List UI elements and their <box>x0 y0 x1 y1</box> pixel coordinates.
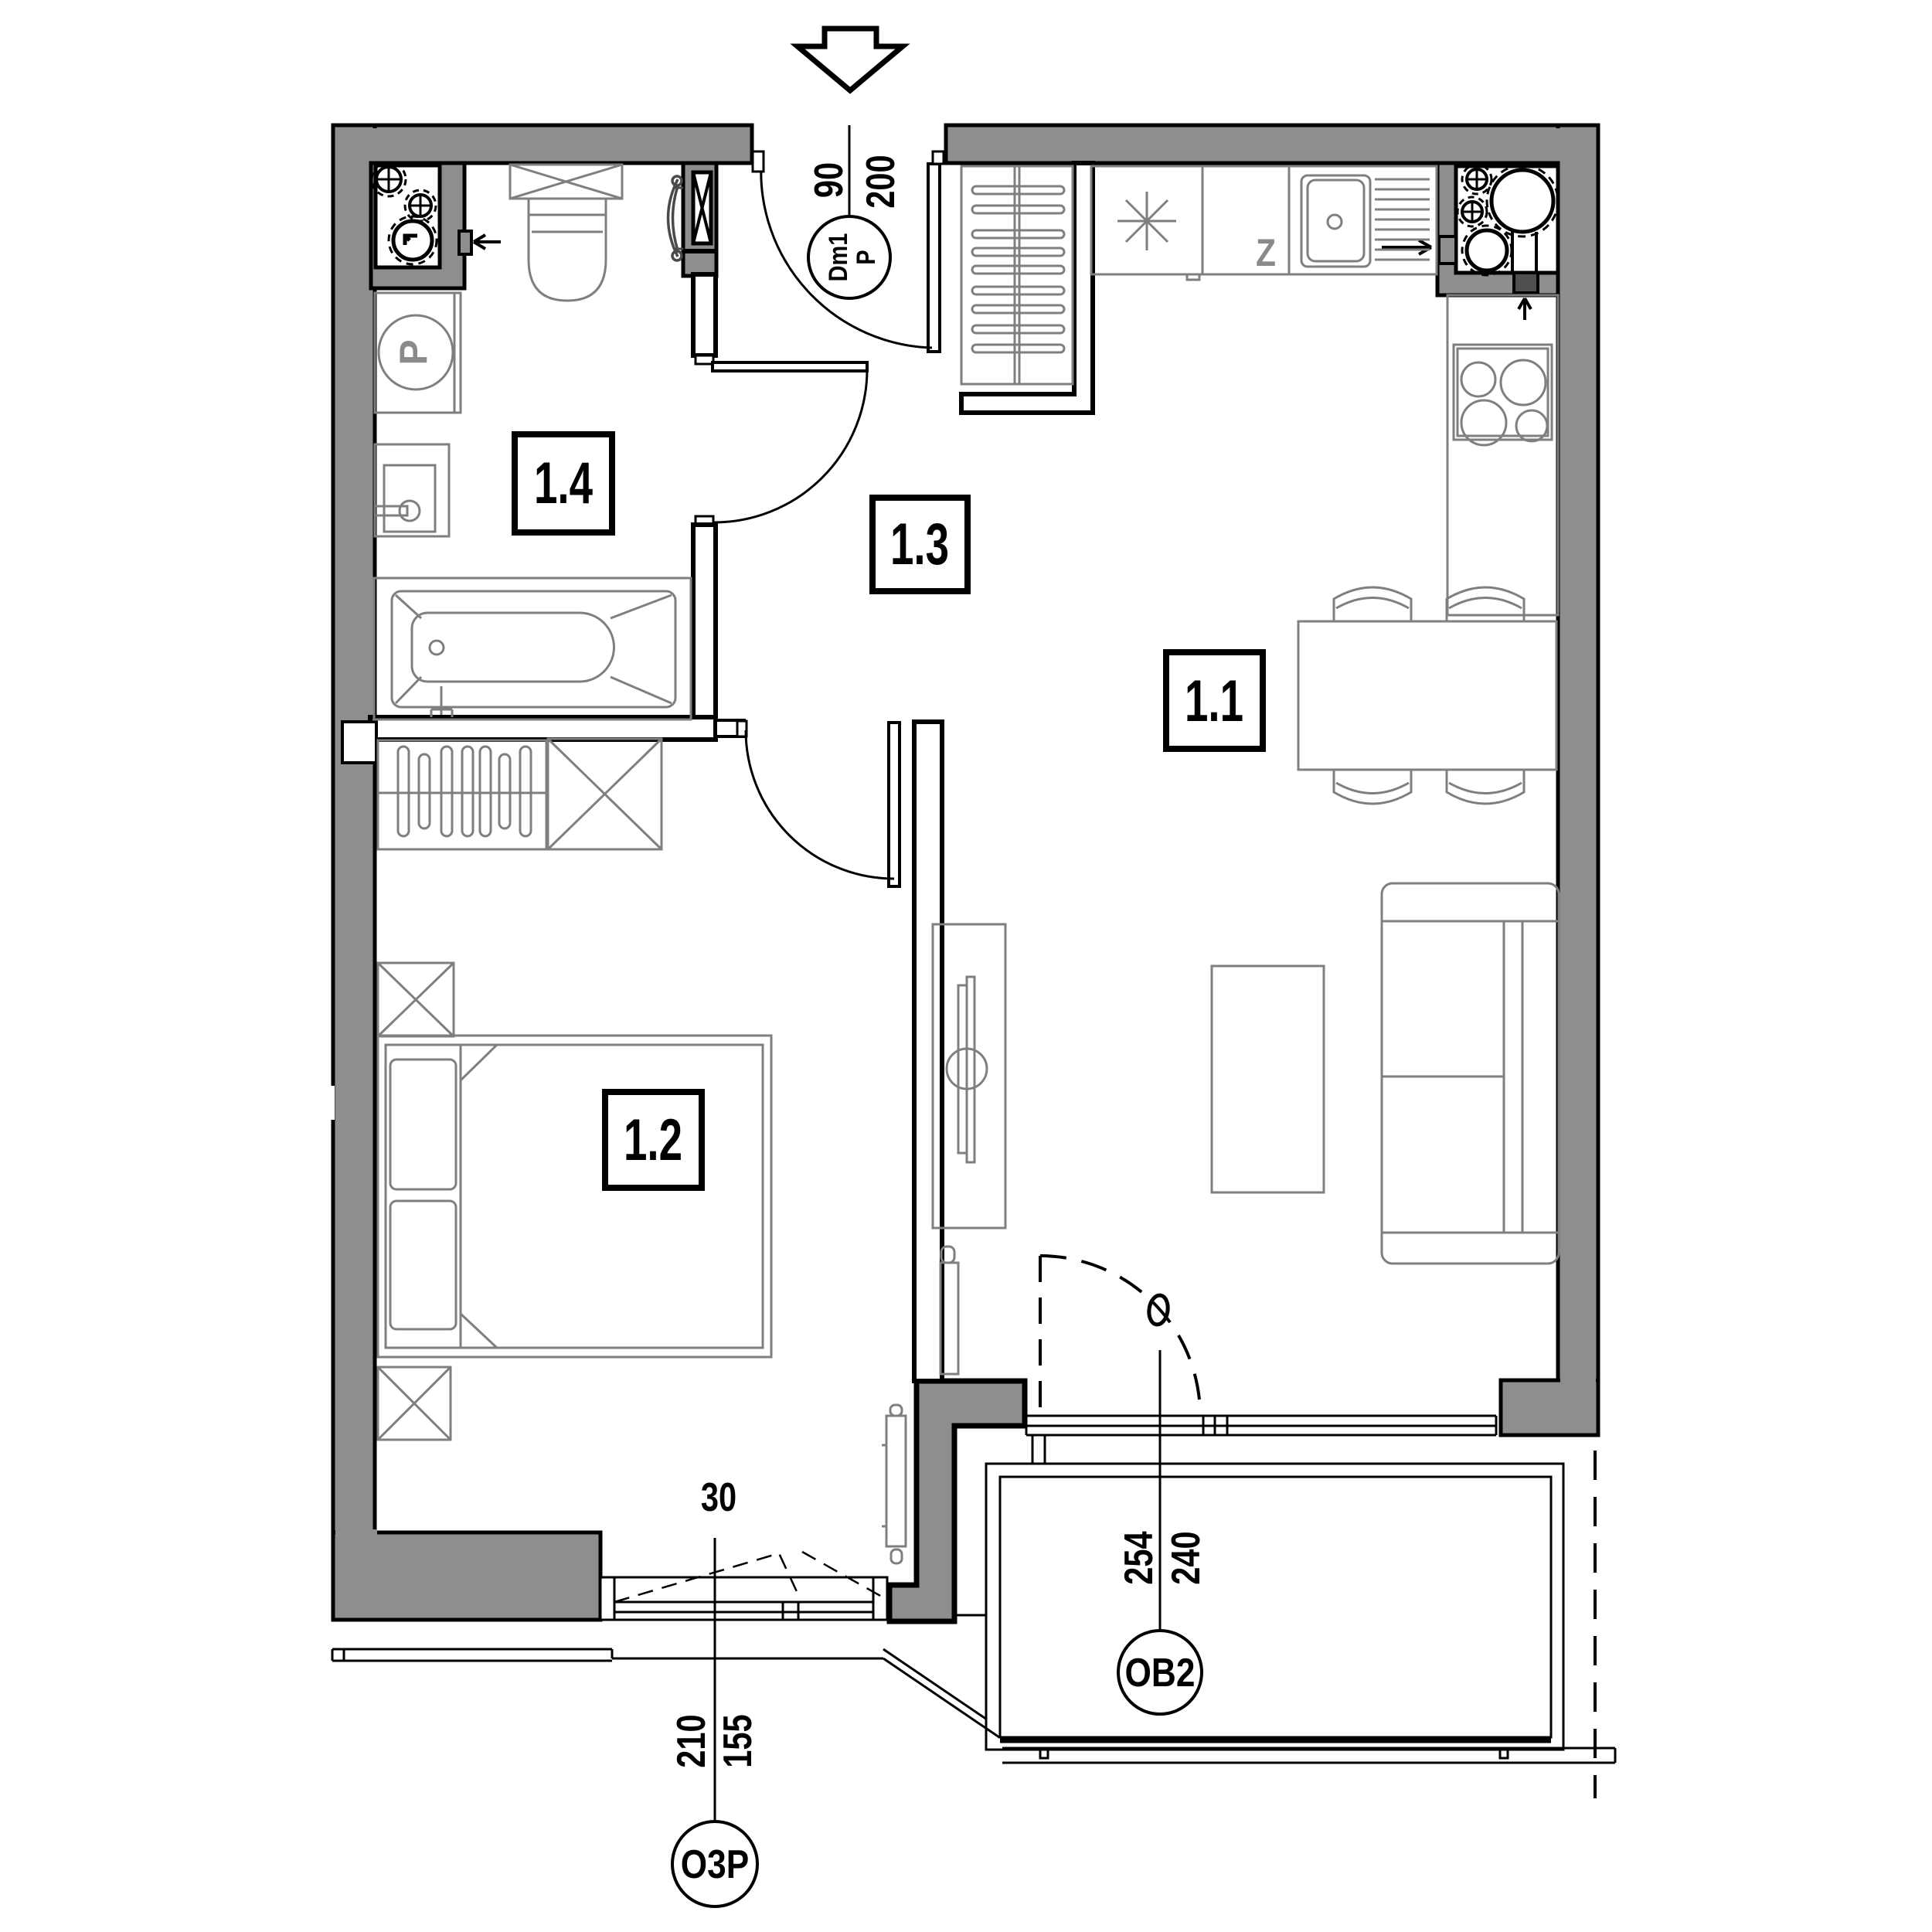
svg-text:90: 90 <box>806 162 852 198</box>
svg-text:P: P <box>392 339 435 365</box>
svg-text:1.4: 1.4 <box>534 451 593 516</box>
svg-text:1.1: 1.1 <box>1185 668 1243 734</box>
svg-text:240: 240 <box>1163 1531 1209 1584</box>
svg-text:P: P <box>851 250 881 264</box>
svg-text:210: 210 <box>668 1714 714 1767</box>
svg-text:254: 254 <box>1116 1531 1162 1584</box>
svg-text:Dm1: Dm1 <box>823 233 853 282</box>
svg-text:Z: Z <box>1256 231 1276 274</box>
svg-text:200: 200 <box>858 155 903 208</box>
svg-text:1.3: 1.3 <box>890 512 949 577</box>
svg-text:30: 30 <box>701 1475 736 1520</box>
svg-text:155: 155 <box>715 1714 760 1767</box>
svg-text:OB2: OB2 <box>1125 1651 1196 1696</box>
svg-text:1.2: 1.2 <box>624 1107 682 1173</box>
svg-text:O3P: O3P <box>681 1842 749 1887</box>
